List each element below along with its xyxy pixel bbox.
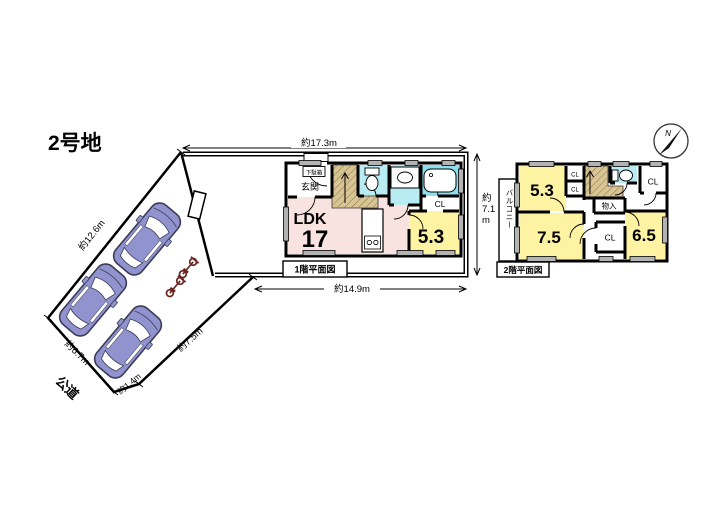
closet-d-label: CL — [605, 233, 616, 243]
bicycle-2 — [164, 275, 186, 299]
storage-label: 物入 — [602, 201, 617, 211]
dim-right-2: 7.1 — [482, 204, 495, 215]
dim-right-diagonal: 約7.5m — [175, 325, 206, 354]
floor1-plan: 下駄箱 玄関 LDK 17 5.3 CL 1階平面図 — [283, 154, 464, 278]
page-title: 2号地 — [48, 131, 102, 155]
entrance-label: 玄関 — [301, 181, 319, 192]
bicycle-1 — [177, 256, 199, 280]
boundary-marker — [188, 191, 206, 219]
closet-c-label: CL — [648, 177, 659, 187]
floor1-caption: 1階平面図 — [294, 264, 335, 275]
room-5_3-label: 5.3 — [418, 227, 444, 248]
balcony-label: バルコニー — [501, 189, 513, 255]
bathtub-icon — [424, 169, 456, 192]
car-1 — [107, 197, 187, 282]
toilet-icon-2f — [612, 170, 633, 181]
floor2-plan: 5.3 7.5 6.5 CL CL CL CL 物入 2階平面図 — [497, 162, 668, 278]
road-label: 公道 — [53, 373, 82, 402]
compass: N — [654, 124, 688, 158]
dim-road-edge: 約6.7m — [62, 338, 92, 368]
ldk-size-label: 17 — [302, 226, 329, 253]
compass-north-label: N — [665, 129, 671, 138]
floorplan-canvas: 2号地 約17.3m — [0, 0, 705, 525]
room2f-7_5-label: 7.5 — [537, 228, 561, 247]
dim-right-1: 約 — [482, 192, 492, 204]
dim-top: 約17.3m — [301, 137, 337, 149]
dim-bottom: 約14.9m — [334, 283, 370, 295]
toilet-tank-icon — [365, 168, 379, 175]
closet-b-label: CL — [571, 188, 579, 194]
toilet-bowl-icon — [366, 176, 378, 191]
floor2-caption: 2階平面図 — [504, 265, 543, 275]
sink-icon — [398, 172, 413, 183]
closet-a-label: CL — [571, 173, 579, 179]
shoe-cabinet-label: 下駄箱 — [306, 169, 323, 177]
dim-right-3: m — [482, 215, 490, 226]
room2f-5_3-label: 5.3 — [530, 181, 554, 200]
closet-label-1f: CL — [435, 199, 446, 209]
room2f-6_5-label: 6.5 — [632, 226, 656, 245]
floorplan-page: 2号地 約17.3m — [0, 0, 705, 525]
